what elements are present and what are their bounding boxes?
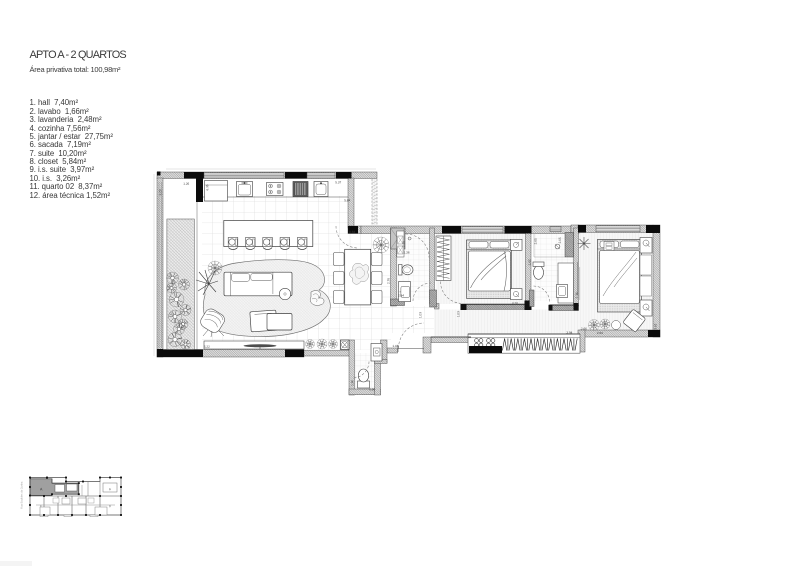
svg-text:5.64: 5.64 [344,198,350,202]
svg-text:1.36: 1.36 [404,251,410,255]
svg-text:B: B [109,488,111,491]
svg-text:1.03: 1.03 [418,312,422,318]
svg-text:1.03: 1.03 [456,311,460,317]
svg-text:2.84: 2.84 [398,293,404,297]
svg-text:Rua Euclides da Cunha: Rua Euclides da Cunha [20,481,23,509]
svg-text:2.76: 2.76 [386,278,390,284]
svg-text:2.66: 2.66 [581,327,587,331]
svg-text:3.62: 3.62 [653,323,657,329]
svg-text:2.65: 2.65 [534,238,538,244]
svg-text:1.43: 1.43 [392,344,398,348]
svg-text:6.35: 6.35 [205,184,209,190]
svg-text:5.22: 5.22 [204,345,210,349]
svg-text:D: D [109,505,111,508]
svg-text:6.29: 6.29 [158,189,162,195]
svg-text:2.65: 2.65 [402,241,406,247]
svg-text:1.26: 1.26 [183,182,189,186]
svg-text:5.37: 5.37 [335,180,341,184]
svg-text:3.20: 3.20 [512,301,518,305]
svg-text:0.64: 0.64 [349,230,355,234]
svg-text:1.60: 1.60 [350,380,354,386]
svg-text:1.62: 1.62 [528,259,532,265]
svg-text:2.64: 2.64 [597,331,603,335]
svg-text:2.65: 2.65 [558,237,562,243]
svg-text:3.94: 3.94 [566,331,572,335]
svg-text:C: C [40,505,42,508]
svg-text:2.36: 2.36 [575,292,579,298]
svg-text:0.90: 0.90 [369,387,375,391]
